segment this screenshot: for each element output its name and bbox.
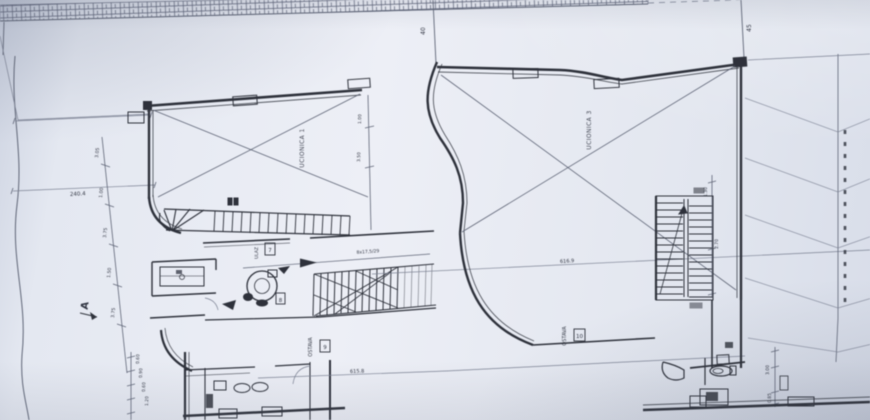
dimension-label: 240.4 — [70, 191, 87, 198]
svg-text:A: A — [80, 301, 92, 310]
dimension-label: 3.05 — [94, 147, 101, 158]
grid-ref-label: 40 — [420, 27, 427, 35]
terrain-contours — [745, 54, 870, 362]
svg-text:10: 10 — [576, 334, 583, 340]
dimension-label: 1.50 — [106, 267, 113, 278]
svg-text:9: 9 — [323, 345, 327, 351]
room-label: UČIONICA 3 — [586, 110, 593, 149]
sink-fixture — [234, 384, 250, 393]
svg-text:ULAZ: ULAZ — [254, 247, 260, 259]
dimension-label: 615.8 — [350, 369, 365, 375]
door-swing — [205, 298, 218, 310]
curved-wall — [460, 233, 533, 345]
dimension-label: 616.9 — [560, 258, 575, 265]
dimension-label: 1.00 — [357, 114, 363, 124]
door-leaf — [206, 394, 213, 408]
dimension-label: 0.85 — [767, 393, 773, 403]
winder-staircase — [159, 198, 350, 235]
grid-reference-lines: 40 45 — [420, 0, 753, 64]
dimension-label: 3.50 — [356, 152, 362, 162]
dimension-label: 0.60 — [135, 354, 141, 364]
svg-text:8: 8 — [279, 298, 283, 304]
room-tag-entry: ULAZ 7 — [254, 243, 275, 259]
dimension-label: 0.60 — [141, 382, 147, 392]
floor-plan-photo: 40 45 240.4 3.05 1.00 3.75 1.50 3.75 A — [0, 0, 870, 420]
wall-niche — [128, 112, 144, 123]
dimension-label: 1.20 — [144, 396, 150, 406]
grid-ref-label: 45 — [746, 24, 753, 32]
door-opening — [717, 355, 729, 365]
plot-boundary — [0, 22, 150, 420]
stair-formula: 8x17,5/29 — [356, 248, 379, 256]
door-swing — [293, 366, 310, 384]
circular-fixture — [243, 270, 277, 307]
direction-arrow-right-icon — [300, 259, 317, 268]
direction-arrow-down-icon — [278, 266, 290, 274]
x-brace — [441, 66, 736, 290]
direction-arrow-left-icon — [222, 300, 236, 310]
fixture — [214, 381, 226, 390]
window-opening — [348, 78, 371, 89]
left-dimension-chain: 3.05 1.00 3.75 1.50 3.75 A — [80, 137, 127, 373]
room-label: UČIONICA 1 — [299, 128, 306, 167]
urinal-fixture — [662, 362, 684, 380]
dimension-label: 0.90 — [138, 368, 144, 378]
dimension-label: 3.75 — [110, 307, 117, 318]
left-dimension-lines: 240.4 — [11, 112, 156, 198]
double-flight-staircase — [656, 188, 713, 308]
toilet-fixture — [710, 366, 736, 376]
left-hall: UČIONICA 1 1.00 3.50 — [128, 78, 374, 233]
floor-plan-drawing: 40 45 240.4 3.05 1.00 3.75 1.50 3.75 A — [0, 0, 870, 420]
dimension-label: 1.00 — [98, 187, 105, 198]
dimension-label: 3.75 — [102, 227, 109, 238]
hatched-boundary-band — [0, 0, 790, 21]
wall-corner-block — [143, 101, 152, 110]
x-brace — [153, 94, 368, 197]
dimension-label: 3.00 — [765, 365, 771, 375]
dimension-label: 2.70 — [714, 239, 720, 249]
right-hall: UČIONICA 3 1.30 2.70 — [428, 57, 748, 345]
store-room-walls — [152, 259, 216, 296]
svg-text:OSTAVA: OSTAVA — [308, 337, 314, 357]
svg-text:7: 7 — [268, 248, 272, 254]
section-marker-a: A — [80, 301, 97, 320]
tank-fixture — [160, 267, 204, 286]
sink-fixture — [252, 383, 268, 392]
room-tag-stair: 8 — [276, 293, 285, 304]
survey-lines: 616.9 615.8 — [258, 250, 870, 378]
room-tag-storage-left: OSTAVA 9 — [308, 337, 330, 357]
